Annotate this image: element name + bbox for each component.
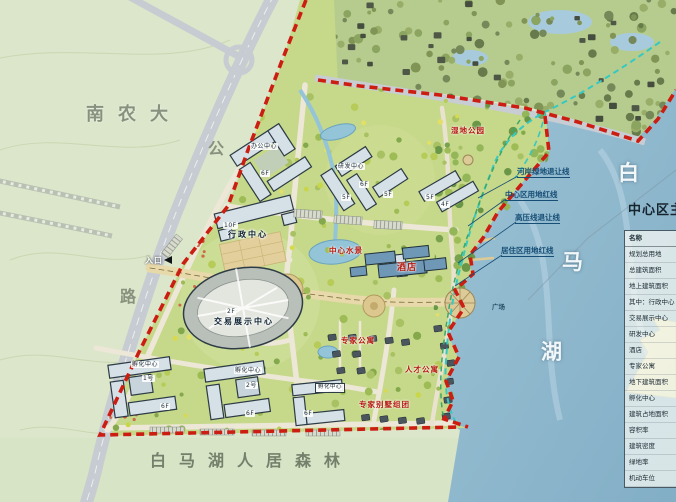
incubator2-floor-chip: 6F [245,410,255,417]
master-plan-map: 南农大 公 路 白马湖人居森林 白 马 湖 河岸绿地退让线 中心区用地红线 高压… [0,0,676,502]
incubator2-no-chip: 2号 [245,382,258,389]
callout-riverside-green-setback: 河岸绿地退让线 [517,168,570,178]
incubator3-floor-chip: 6F [303,410,313,417]
legend-table: 名称 规划总用地 总建筑面积 地上建筑面积 其中：行政中心 交易展示中心 研发中… [624,230,676,488]
legend-row: 规划总用地 [625,247,676,263]
incubator1-floor-chip: 6F [160,403,170,410]
legend-row: 酒店 [625,343,676,359]
legend-row: 地上建筑面积 [625,279,676,295]
callout-high-voltage-setback: 高压线退让线 [515,214,560,224]
expert-apartment-label: 专家公寓 [341,337,375,345]
legend-row: 研发中心 [625,327,676,343]
legend-row: 建筑密度 [625,439,676,455]
pier-plaza-label: 广场 [492,304,505,311]
rnd-center-label: 研发中心 [337,163,365,170]
university-area-label: 南农大 [86,106,182,124]
incubator1-label: 孵化中心 [131,361,159,368]
legend-row: 建筑占地面积 [625,407,676,423]
lake-name-char1: 白 [618,163,639,184]
admin-floor-chip: 10F [223,222,238,229]
legend-row: 地下建筑面积 [625,375,676,391]
expert-villa-label: 专家别墅组团 [359,401,410,409]
forest-belt-label: 白马湖人居森林 [150,453,353,469]
ne-floor-chip-5f: 5F [425,194,435,201]
legend-row: 交易展示中心 [625,311,676,327]
central-waterscape-label: 中心水景 [329,247,363,255]
legend-row: 容积率 [625,423,676,439]
office-center-label: 办公中心 [250,143,278,150]
expo-floor-chip: 2F [226,308,236,315]
callout-center-land-redline: 中心区用地红线 [505,191,558,201]
legend-row: 其中：行政中心 [625,295,676,311]
hotel-label: 酒店 [397,264,417,273]
legend-row: 绿地率 [625,455,676,471]
legend-row: 专家公寓 [625,359,676,375]
legend-row: 孵化中心 [625,391,676,407]
incubator3-label: 孵化中心 [315,383,345,393]
legend-row: 总建筑面积 [625,263,676,279]
lake-name-char3: 湖 [541,342,562,363]
legend-title: 中心区主要经济技术指标 [628,204,676,217]
legend-row: 名称 [625,231,676,247]
callout-residential-land-redline: 居住区用地红线 [501,247,554,257]
lake-name-char2: 马 [562,252,583,273]
entrance-arrow-icon [164,256,172,264]
legend-row: 机动车位 [625,471,676,487]
rnd-floor-chip-5f: 5F [341,194,351,201]
highway-label-char2: 路 [120,289,136,305]
wetland-park-label: 湿地公园 [451,127,485,135]
office-floor-chip: 6F [260,170,270,177]
rnd-floor-chip-5f-b: 5F [383,191,393,198]
expo-center-label: 交易展示中心 [214,318,274,326]
admin-center-label: 行政中心 [228,231,268,239]
forest-strip [0,438,460,502]
entrance-label: 入口 [145,257,163,265]
rnd-floor-chip-6f: 6F [359,181,369,188]
highway-label-char1: 公 [208,141,224,157]
ne-floor-chip-4f: 4F [440,201,450,208]
incubator1-no-chip: 1号 [142,375,155,382]
talent-apartment-label: 人才公寓 [405,366,439,374]
incubator2-label: 孵化中心 [234,367,262,374]
